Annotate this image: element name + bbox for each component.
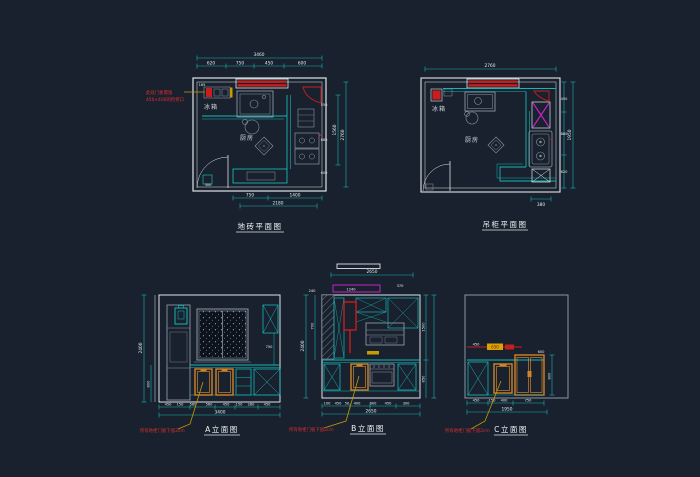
ceiling-bulkhead: [337, 264, 380, 269]
corner-shelf-symbol: [303, 87, 321, 103]
dim-text: 150: [177, 403, 185, 407]
note-line-2: 450×400的检修口: [146, 96, 184, 103]
note-text: 所有地柜门板下留2cm: [140, 427, 185, 434]
base-cabinet-x: [254, 369, 280, 395]
range-hood: [366, 323, 404, 345]
dim-text: 450: [165, 403, 173, 407]
dimensions-bottom: 750 1400 2180: [233, 193, 322, 209]
base-cabinet-x: [324, 364, 340, 390]
dim-text: 620: [561, 170, 569, 174]
wall-cabinet-x: [263, 305, 278, 333]
water-heater-symbol: [431, 89, 452, 101]
dim-text: 100: [324, 402, 332, 406]
dim-text: 700: [311, 322, 315, 330]
dim-text: 450: [335, 402, 343, 406]
sink-symbol: [465, 92, 495, 111]
dim-text: 1950: [502, 407, 513, 413]
dim-text: 450: [561, 97, 569, 101]
base-cabinet-door: [351, 364, 368, 390]
hanging-cabinet-symbol: [467, 79, 519, 88]
dim-text: 150: [236, 403, 244, 407]
base-cabinet-door: [216, 369, 233, 395]
floor-tile-plan: 3460 620 750 450 600: [140, 45, 350, 240]
fridge-label: 冰箱: [204, 103, 218, 111]
base-cabinet-door: [195, 369, 212, 395]
dimensions-top: 3460 620 750 450 600: [197, 52, 322, 69]
drawing-title: 地砖平面图: [238, 221, 283, 231]
dimensions-bottom: 450 150 400 750 1950: [467, 399, 547, 415]
dimensions-bottom: 100 450 50 400 600 450 300 2650: [322, 402, 420, 417]
counter-lines: [426, 89, 556, 191]
wall-hatch-column: [322, 295, 334, 359]
wall-cabinets: [334, 298, 418, 358]
shelf-highlight: [367, 351, 379, 355]
dim-text: 2180: [273, 201, 284, 207]
dim-text: 2760: [340, 129, 346, 140]
dim-text: 450: [264, 403, 272, 407]
elevation-a: 750 2400: [130, 280, 295, 445]
tall-cabinet-double-door: [515, 355, 544, 395]
dimensions-right: 1500 850: [422, 295, 437, 398]
hanging-cabinet-plan: 2760 冰箱 厨房: [410, 55, 585, 240]
dim-text: 1500: [422, 322, 426, 332]
soffit-band: 240 1240 370: [309, 284, 405, 293]
dimensions-bottom: 380: [531, 197, 551, 209]
dim-text: 450: [223, 403, 231, 407]
open-shelf-cabinet: [236, 369, 251, 395]
dim-text: 450: [385, 402, 393, 406]
mid-dimension: 750: [266, 333, 274, 365]
dim-text: 600: [298, 61, 306, 67]
dim-text: 550: [321, 103, 329, 107]
dim-text: 800: [548, 372, 552, 380]
dimensions-bottom: 450 150 560 560 450 150 280 450 3400: [159, 403, 280, 418]
dim-text: 2650: [366, 409, 377, 415]
corner-shelf-symbol: [534, 91, 549, 101]
dim-text: 165: [199, 83, 206, 87]
dimensions-left: 2400 800: [138, 295, 151, 402]
door-swing: [423, 161, 450, 191]
highlight-label: 650: [491, 345, 499, 350]
cad-canvas: 3460 620 750 450 600: [0, 0, 700, 477]
dim-text: 3400: [215, 410, 226, 416]
room-label: 厨房: [240, 134, 254, 142]
red-block: [505, 345, 514, 350]
drawing-title: A立面图: [205, 424, 239, 434]
elevation-b: 2650 240 1240 370: [288, 256, 448, 441]
dim-text: 600: [370, 402, 378, 406]
dimensions-top: 2760: [425, 63, 556, 72]
note-text: 所有地柜门板下留2cm: [445, 427, 490, 434]
dim-text: 800: [147, 380, 151, 388]
hanging-cabinet-symbol: [236, 79, 288, 88]
dim-text: 750: [266, 345, 274, 349]
dim-text: 300: [403, 402, 411, 406]
dim-text: 3460: [254, 52, 265, 58]
dim-text: 2400: [138, 342, 144, 353]
stool-symbol: [242, 119, 259, 134]
stool-symbol: [465, 112, 478, 124]
fridge-label: 冰箱: [432, 105, 446, 113]
dimensions-left: 2400 700: [300, 295, 315, 398]
dim-text: 850: [422, 375, 426, 383]
dim-text: 1400: [290, 193, 301, 199]
note-text: 所有地柜门板下留2cm: [289, 426, 334, 433]
dim-text: 300: [205, 183, 213, 187]
dim-text: 50: [345, 402, 350, 406]
dim-text: 2400: [300, 340, 306, 351]
base-cabinet-x: [468, 362, 488, 395]
dim-text: 2650: [367, 269, 378, 275]
cabinet-x-symbol: [532, 102, 550, 128]
cooktop-symbol: [295, 109, 321, 164]
flue-duct: [344, 302, 356, 353]
base-cabinet-door: [494, 364, 512, 393]
dim-text: 370: [397, 284, 405, 288]
dim-text: 1950: [567, 129, 573, 140]
dim-text: 750: [236, 61, 244, 67]
drawing-title: B立面图: [351, 423, 385, 433]
dim-text: 240: [309, 289, 317, 293]
floor-tile-symbol: [255, 137, 273, 155]
dim-text: 1560: [332, 124, 338, 135]
inspection-note: 此处门板需留 450×400的检修口: [146, 89, 205, 103]
dim-text: 400: [354, 402, 362, 406]
dim-text: 750: [525, 399, 533, 403]
dim-text: 450: [473, 399, 481, 403]
dim-text: 280: [248, 403, 256, 407]
dim-text: 450: [473, 343, 481, 347]
dim-text: 600: [321, 171, 329, 175]
dim-text: 400: [501, 399, 509, 403]
level-line-annotation: 450 650: [467, 343, 522, 351]
dimensions-right: 550 880 600 1560 2760: [321, 82, 349, 187]
dim-text: 2760: [485, 63, 496, 69]
water-purifier-symbol: [175, 306, 187, 325]
dim-text: 450: [265, 61, 273, 67]
sink-symbol: [237, 91, 273, 117]
note-line-1: 此处门板需留: [146, 89, 173, 96]
dim-text: 880: [321, 138, 329, 142]
door-swing: [197, 155, 228, 188]
base-cabinet-x: [398, 364, 416, 390]
dim-text: 380: [537, 202, 545, 208]
oven-symbol: [370, 364, 394, 386]
dim-text: 1240: [346, 288, 356, 292]
room-label: 厨房: [465, 136, 479, 144]
floor-tile-symbol: [488, 137, 504, 153]
dimensions-right: 450 880 620 1950: [561, 82, 576, 188]
drawing-title: 吊柜平面图: [483, 219, 528, 229]
dim-text: 560: [206, 403, 214, 407]
elevation-c: 450 650 600 800: [445, 283, 595, 443]
drawing-title: C立面图: [494, 424, 528, 434]
dim-text: 750: [246, 193, 254, 199]
window-symbol: [194, 309, 251, 362]
dim-text: 880: [561, 132, 569, 136]
dim-text: 620: [207, 61, 215, 67]
dimension-side: 800: [548, 355, 555, 395]
water-heater-symbol: 165: [199, 83, 233, 98]
room-walls: [193, 78, 326, 191]
dimensions-top: 2650: [331, 269, 413, 278]
cooktop-symbol: [529, 131, 553, 167]
cabinet-x-symbol-small: [532, 169, 550, 182]
dim-text: 600: [538, 350, 546, 354]
